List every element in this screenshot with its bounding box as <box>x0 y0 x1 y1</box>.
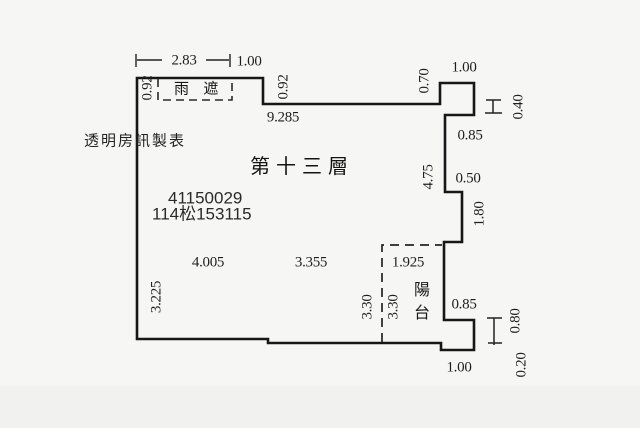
dim-window-upper: 0.40 <box>512 94 527 119</box>
balcony-label: 陽台 <box>413 279 431 325</box>
dim-interior-height: 3.30 <box>361 294 376 319</box>
dim-right-wall-mid: 1.80 <box>473 201 488 226</box>
dim-right-wall-upper: 4.75 <box>422 164 437 189</box>
dim-notch-height: 0.70 <box>418 68 433 93</box>
dim-canopy-depth-right: 0.92 <box>277 74 292 99</box>
dim-interior-width-right: 3.355 <box>295 256 327 271</box>
dim-balcony-width: 1.925 <box>392 256 424 271</box>
dim-bottom-step-height: 0.20 <box>515 352 530 377</box>
registration-number: 114松153115 <box>152 206 252 223</box>
dim-step-mid-width: 0.50 <box>455 172 480 187</box>
maker-watermark: 透明房訊製表 <box>84 135 186 150</box>
floor-plan-page: 2.83 1.00 9.285 1.00 0.85 0.50 4.005 3.3… <box>0 0 640 428</box>
dim-canopy-side-width: 1.00 <box>236 55 261 70</box>
canopy-label: 雨 遮 <box>174 83 218 98</box>
floor-title: 第十三層 <box>250 157 354 177</box>
dim-wall-lower-right: 0.80 <box>509 308 524 333</box>
dim-canopy-width: 2.83 <box>171 54 196 69</box>
dim-top-wall-length: 9.285 <box>267 111 299 126</box>
dim-interior-width-left: 4.005 <box>192 256 224 271</box>
dim-notch-width: 1.00 <box>451 61 476 76</box>
dim-step-upper-width: 0.85 <box>457 129 482 144</box>
upper-window-symbol <box>485 100 502 113</box>
dim-bottom-exit-width: 1.00 <box>446 361 471 376</box>
lower-window-symbol <box>487 318 502 345</box>
dim-step-lower-width: 0.85 <box>451 298 476 313</box>
dim-left-wall-lower: 3.225 <box>150 281 165 313</box>
dim-canopy-depth-left: 0.92 <box>141 75 156 100</box>
floor-plan-lines <box>0 0 640 428</box>
dim-balcony-height: 3.30 <box>387 294 402 319</box>
